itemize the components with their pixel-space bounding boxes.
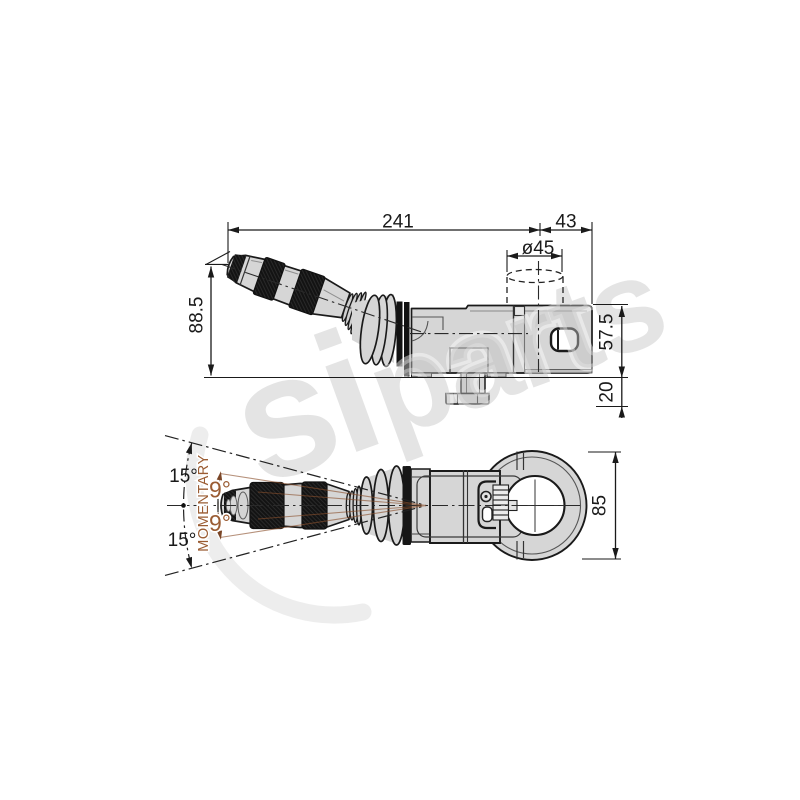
svg-text:20: 20 (597, 381, 618, 402)
svg-text:ø45: ø45 (522, 238, 555, 259)
svg-text:MOMENTARY: MOMENTARY (196, 454, 212, 551)
svg-text:57.5: 57.5 (597, 314, 618, 351)
svg-text:9°: 9° (209, 477, 231, 503)
svg-text:85: 85 (590, 495, 611, 516)
svg-text:9°: 9° (209, 510, 231, 536)
svg-text:88.5: 88.5 (187, 297, 208, 334)
svg-text:15°: 15° (168, 530, 197, 551)
svg-text:15°: 15° (169, 466, 198, 487)
svg-text:43: 43 (555, 212, 576, 233)
svg-text:241: 241 (382, 212, 414, 233)
